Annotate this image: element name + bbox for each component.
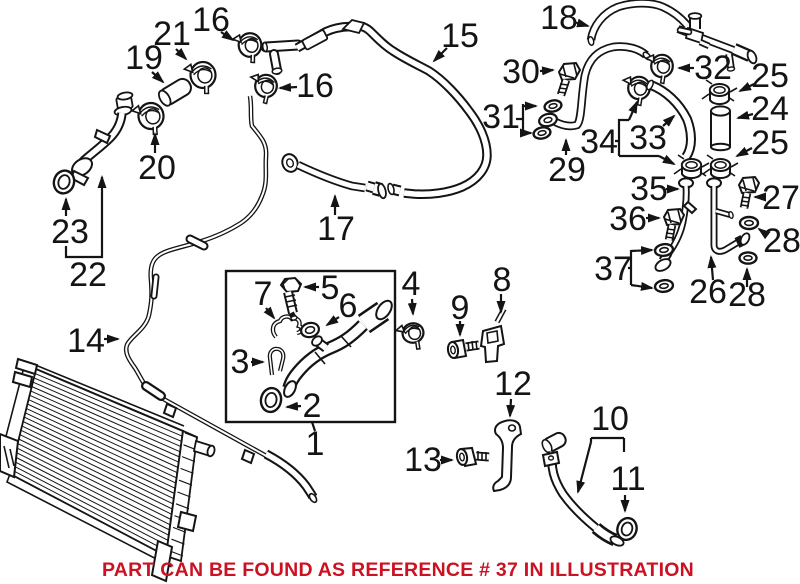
svg-text:19: 19 xyxy=(125,39,163,77)
svg-text:26: 26 xyxy=(689,273,727,311)
svg-text:18: 18 xyxy=(540,0,578,37)
svg-text:2: 2 xyxy=(303,387,322,425)
svg-text:8: 8 xyxy=(493,261,512,299)
svg-text:23: 23 xyxy=(51,213,89,251)
svg-text:10: 10 xyxy=(591,400,629,438)
svg-text:22: 22 xyxy=(69,256,107,294)
svg-text:24: 24 xyxy=(751,90,789,128)
svg-text:14: 14 xyxy=(67,322,105,360)
svg-text:37: 37 xyxy=(594,250,632,288)
svg-text:5: 5 xyxy=(321,269,340,307)
svg-text:33: 33 xyxy=(629,119,667,157)
svg-text:28: 28 xyxy=(763,222,800,260)
svg-text:34: 34 xyxy=(580,123,618,161)
svg-text:3: 3 xyxy=(231,343,250,381)
svg-text:7: 7 xyxy=(254,275,273,313)
svg-text:31: 31 xyxy=(482,98,520,136)
svg-text:11: 11 xyxy=(610,460,645,498)
svg-text:16: 16 xyxy=(296,67,334,105)
svg-text:20: 20 xyxy=(138,149,176,187)
svg-text:27: 27 xyxy=(762,179,800,217)
svg-text:17: 17 xyxy=(317,210,355,248)
svg-text:PART CAN BE FOUND AS REFERENCE: PART CAN BE FOUND AS REFERENCE # 37 IN I… xyxy=(102,559,694,581)
svg-text:32: 32 xyxy=(694,49,732,87)
svg-text:4: 4 xyxy=(402,265,421,303)
svg-text:6: 6 xyxy=(339,287,358,325)
svg-text:1: 1 xyxy=(306,425,325,463)
svg-text:25: 25 xyxy=(751,124,789,162)
svg-text:12: 12 xyxy=(494,365,532,403)
svg-text:30: 30 xyxy=(502,53,540,91)
svg-text:36: 36 xyxy=(609,200,647,238)
svg-text:13: 13 xyxy=(404,441,442,479)
